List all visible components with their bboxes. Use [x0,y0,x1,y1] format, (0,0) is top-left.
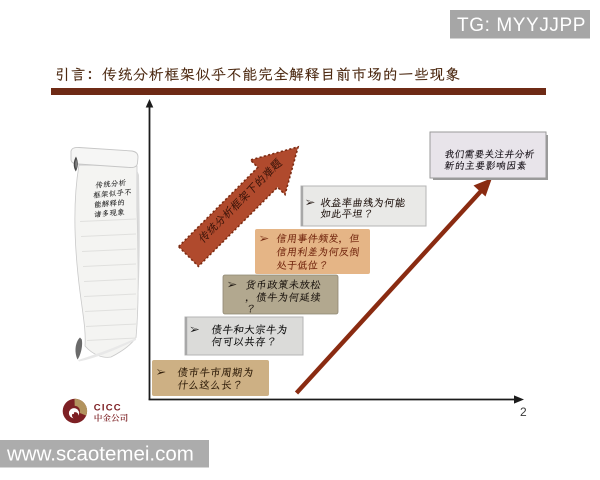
svg-text:CICC: CICC [94,402,122,413]
svg-text:2: 2 [520,405,527,419]
svg-text:www.scaotemei.com: www.scaotemei.com [6,443,194,466]
svg-text:TG: MYYJJPP: TG: MYYJJPP [457,15,586,36]
